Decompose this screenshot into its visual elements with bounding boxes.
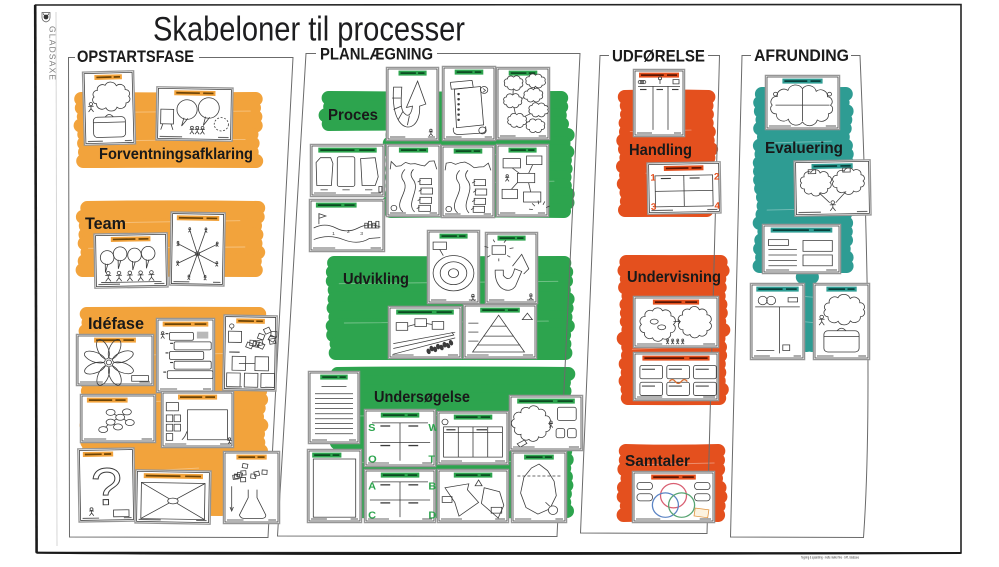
svg-text:B: B: [428, 481, 436, 493]
svg-text:PLANLÆGNING: PLANLÆGNING: [320, 46, 433, 64]
svg-text:1: 1: [332, 231, 335, 237]
svg-text:Skabeloner til processer: Skabeloner til processer: [153, 11, 465, 49]
svg-text:Undervisning: Undervisning: [627, 269, 721, 286]
svg-text:Forventningsafklaring: Forventningsafklaring: [99, 146, 253, 163]
svg-text:Team: Team: [85, 214, 126, 233]
svg-text:Tegning & opsætning · mette mø: Tegning & opsætning · mette møller fine …: [801, 555, 859, 560]
svg-text:C: C: [368, 510, 376, 522]
svg-text:Undersøgelse: Undersøgelse: [374, 389, 470, 406]
svg-text:AFRUNDING: AFRUNDING: [754, 47, 849, 65]
svg-text:3: 3: [360, 231, 363, 237]
svg-text:Idéfase: Idéfase: [88, 314, 144, 333]
svg-text:?: ?: [90, 457, 122, 517]
svg-text:S: S: [368, 422, 375, 434]
svg-text:UDFØRELSE: UDFØRELSE: [612, 48, 705, 66]
svg-text:1: 1: [650, 173, 656, 184]
svg-text:Samtaler: Samtaler: [625, 453, 690, 470]
svg-text:Proces: Proces: [328, 107, 378, 124]
svg-text:A: A: [368, 481, 376, 493]
svg-text:Handling: Handling: [629, 142, 692, 159]
svg-text:2: 2: [347, 229, 350, 235]
svg-text:2: 2: [714, 172, 720, 183]
svg-text:OPSTARTSFASE: OPSTARTSFASE: [77, 48, 194, 66]
svg-text:Evaluering: Evaluering: [765, 140, 843, 157]
svg-text:Udvikling: Udvikling: [343, 271, 409, 288]
svg-text:D: D: [428, 510, 436, 522]
